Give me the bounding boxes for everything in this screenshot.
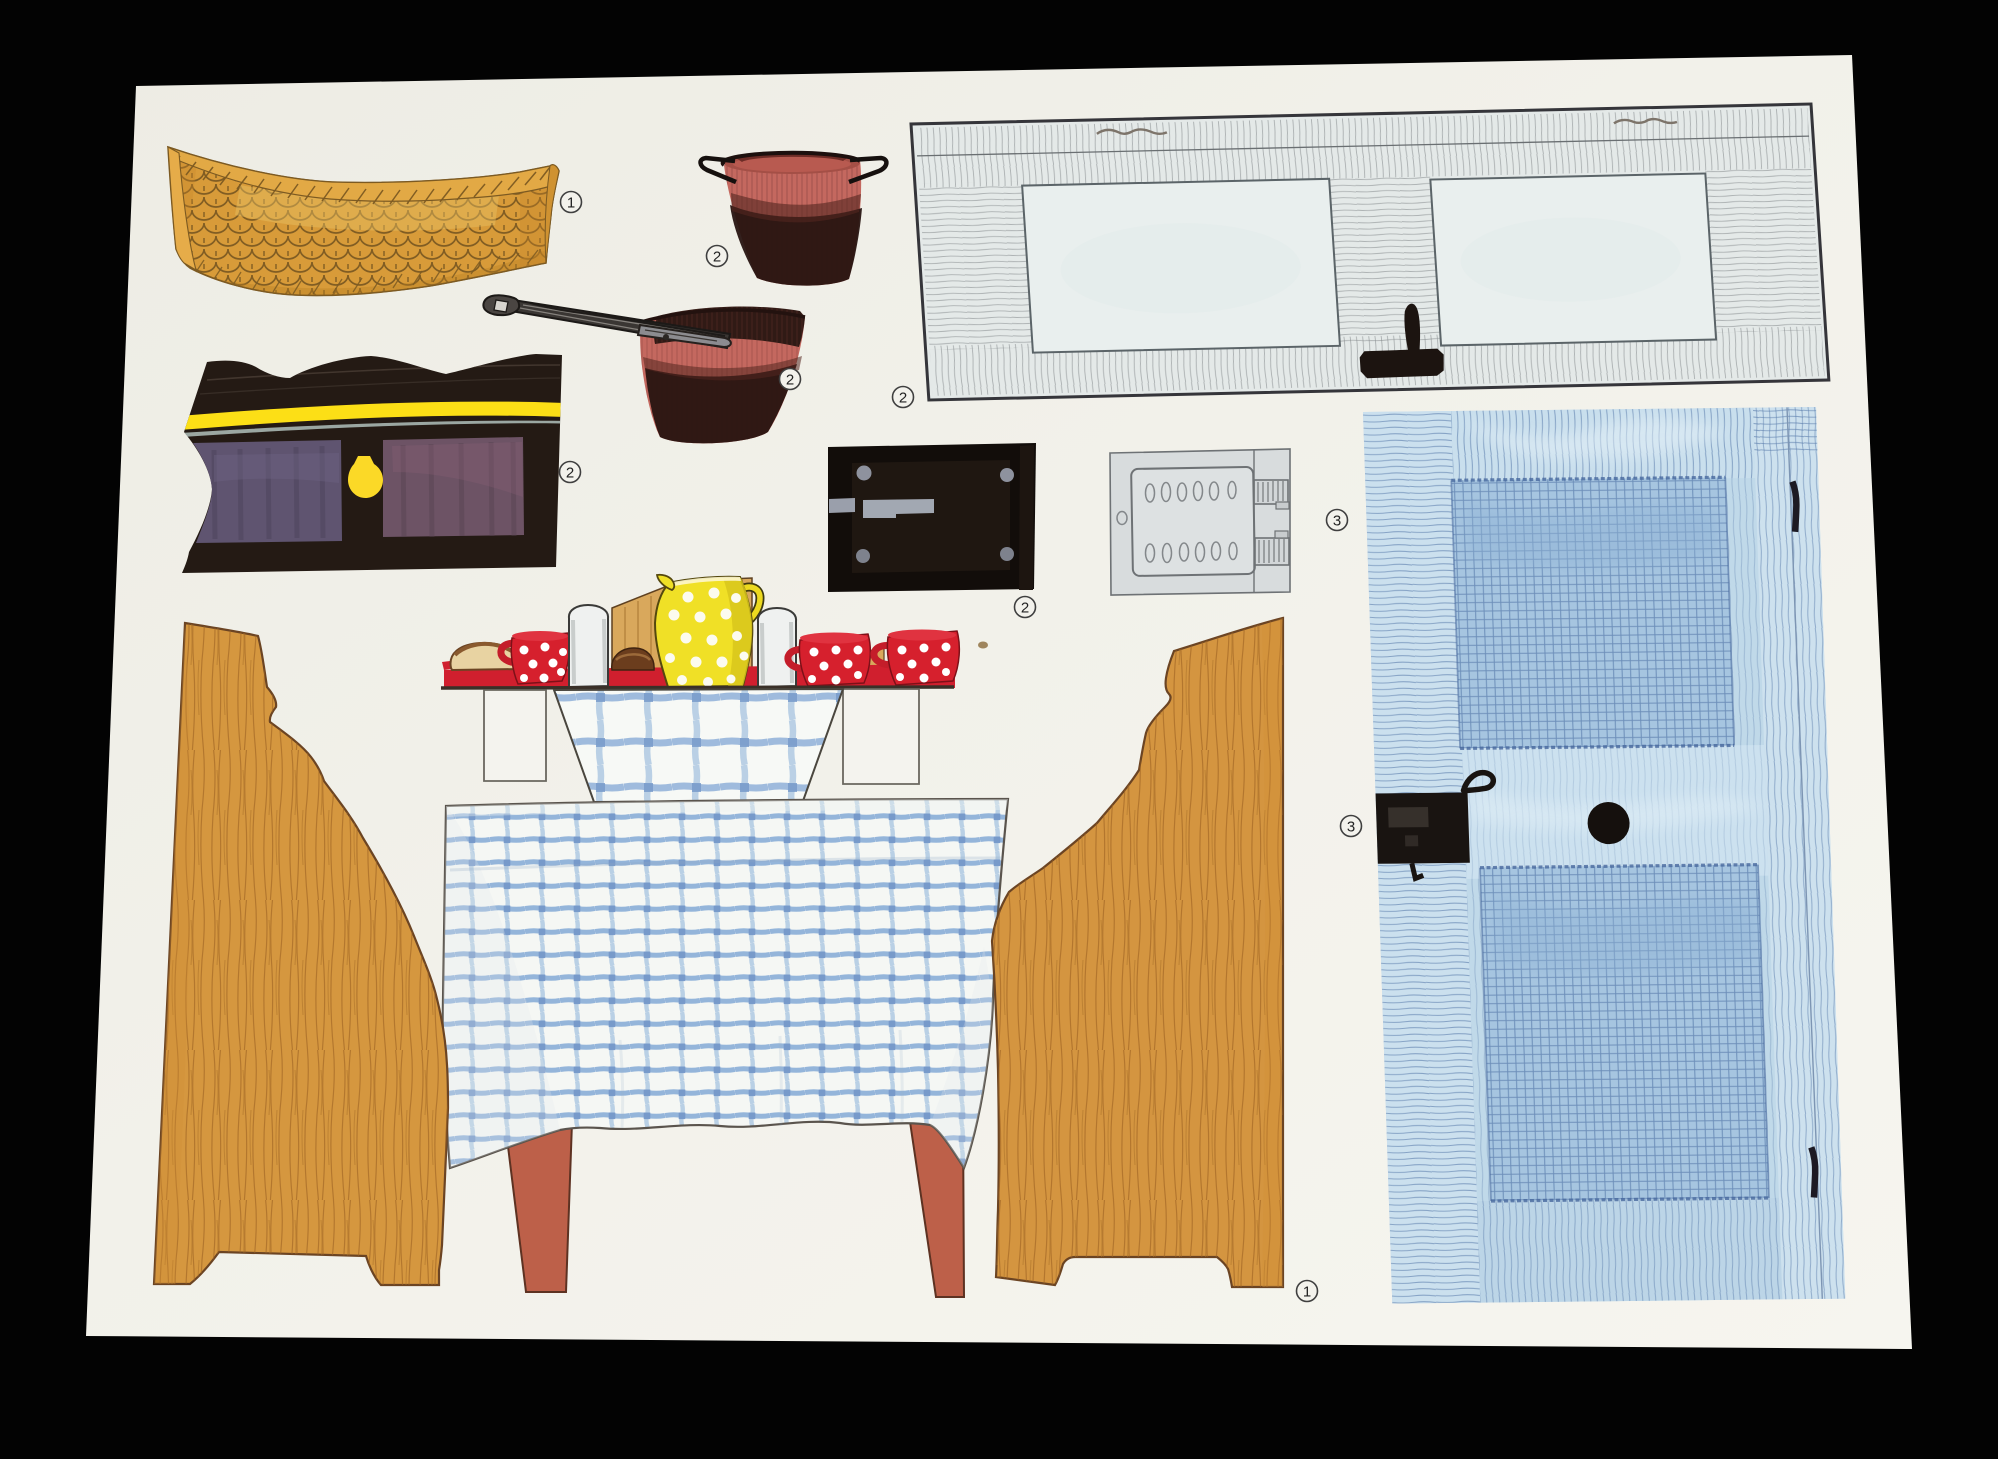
svg-text:1: 1 (1303, 1284, 1311, 1301)
svg-text:2: 2 (566, 465, 574, 482)
svg-text:2: 2 (1021, 600, 1029, 617)
svg-text:3: 3 (1347, 819, 1355, 836)
svg-text:1: 1 (567, 195, 575, 212)
svg-text:2: 2 (786, 372, 794, 389)
svg-text:3: 3 (1333, 513, 1341, 530)
svg-text:2: 2 (713, 249, 721, 266)
svg-text:2: 2 (899, 390, 907, 407)
